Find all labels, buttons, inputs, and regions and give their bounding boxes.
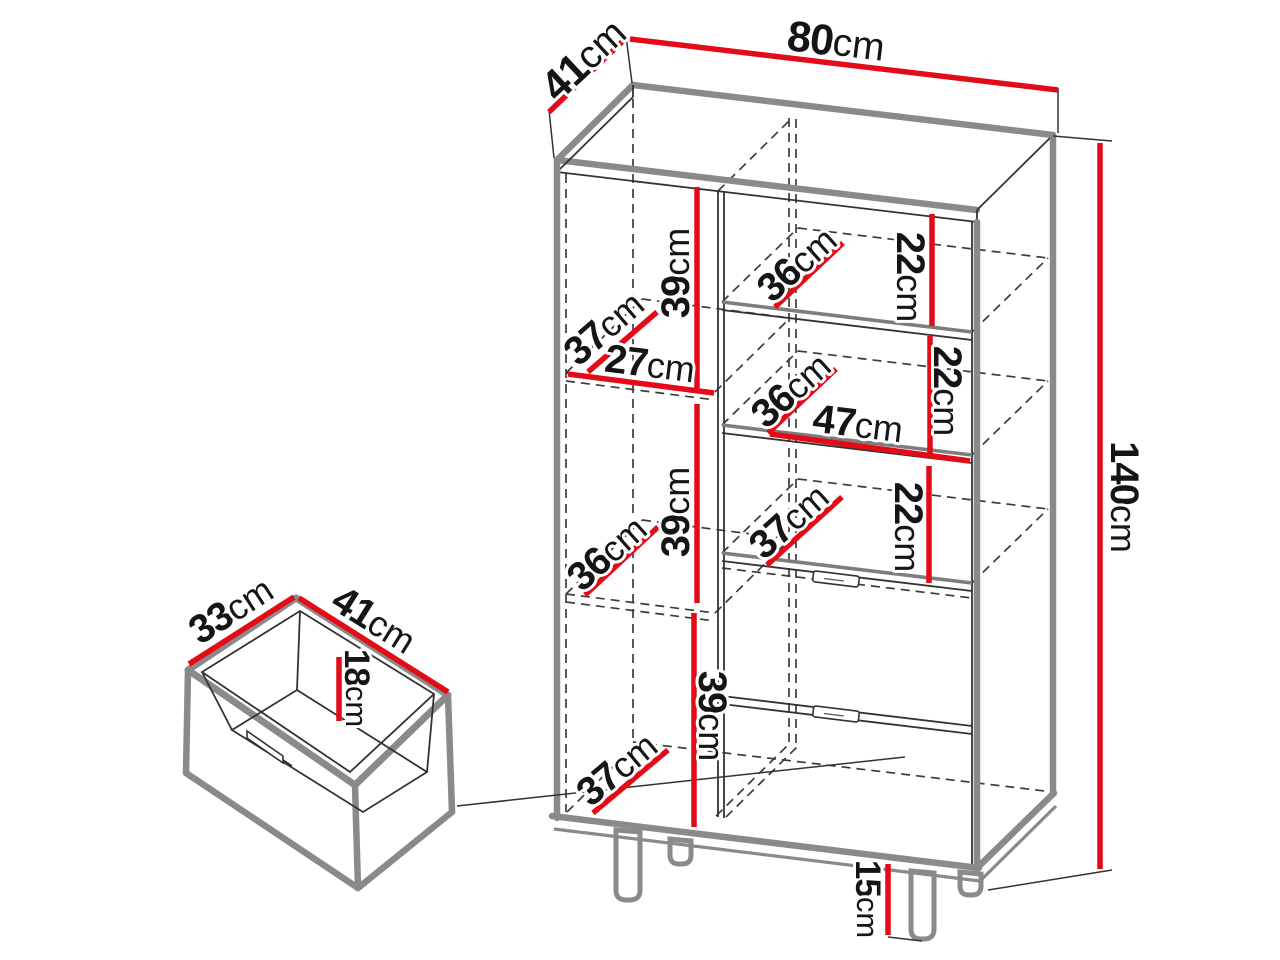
shelf-r2-right-edge bbox=[972, 381, 1048, 455]
dimension-labels: 41cm 80cm 140cm 39cm 37cm 27cm 39cm 36cm… bbox=[181, 9, 1146, 938]
label-width-top: 80cm bbox=[785, 12, 888, 72]
floor-partition-right-hidden bbox=[726, 744, 800, 817]
label-right-gap-2: 22cm bbox=[925, 346, 969, 437]
door2-handle-icon bbox=[813, 706, 860, 723]
label-left-gap-1: 39cm bbox=[654, 228, 698, 319]
cabinet-dimension-diagram: 41cm 80cm 140cm 39cm 37cm 27cm 39cm 36cm… bbox=[0, 0, 1280, 960]
label-left-gap-2: 39cm bbox=[654, 467, 698, 558]
label-left-gap-3: 39cm bbox=[690, 671, 734, 762]
drawer-bottom-right-edge bbox=[358, 812, 452, 888]
door1-handle bbox=[813, 571, 860, 588]
top-slab-bottom-left bbox=[557, 97, 633, 172]
plinth-right-lower-edge bbox=[980, 806, 1056, 881]
top-back-edge bbox=[633, 85, 1053, 135]
bottom-right-edge bbox=[977, 793, 1054, 868]
label-left-bottom-depth: 37cm bbox=[568, 723, 666, 815]
label-left-shelf2-depth: 36cm bbox=[559, 506, 656, 599]
top-front-edge bbox=[557, 160, 977, 210]
ext-height-bottom bbox=[988, 870, 1112, 890]
label-leg-height: 15cm bbox=[849, 860, 888, 938]
drawer-leader-line bbox=[457, 757, 905, 806]
shelf-r3-right-edge bbox=[972, 509, 1048, 583]
label-drawer-height: 18cm bbox=[338, 649, 377, 727]
drawer-right-corner-edge bbox=[448, 695, 452, 812]
label-height: 140cm bbox=[1102, 441, 1146, 553]
drawer-left-corner-edge bbox=[186, 670, 188, 773]
label-left-inner-width: 27cm bbox=[602, 337, 697, 392]
door2-handle bbox=[813, 706, 860, 723]
door-handles bbox=[813, 571, 860, 723]
top-slab-bottom-front bbox=[557, 172, 977, 222]
shelf-r1-right-edge bbox=[972, 258, 1048, 332]
label-right-gap-1: 22cm bbox=[888, 232, 932, 323]
leg-rear-right bbox=[960, 872, 981, 895]
door1-handle-icon bbox=[813, 571, 860, 588]
ext-height-top bbox=[1053, 136, 1112, 141]
top-right-edge bbox=[977, 135, 1053, 210]
drawer-bottom-front-edge bbox=[186, 773, 358, 888]
drawer-front-corner-edge bbox=[355, 785, 358, 888]
label-right-gap-3: 22cm bbox=[886, 482, 930, 573]
leg-front-right bbox=[911, 871, 934, 939]
ext-depth-top-front bbox=[549, 110, 554, 158]
